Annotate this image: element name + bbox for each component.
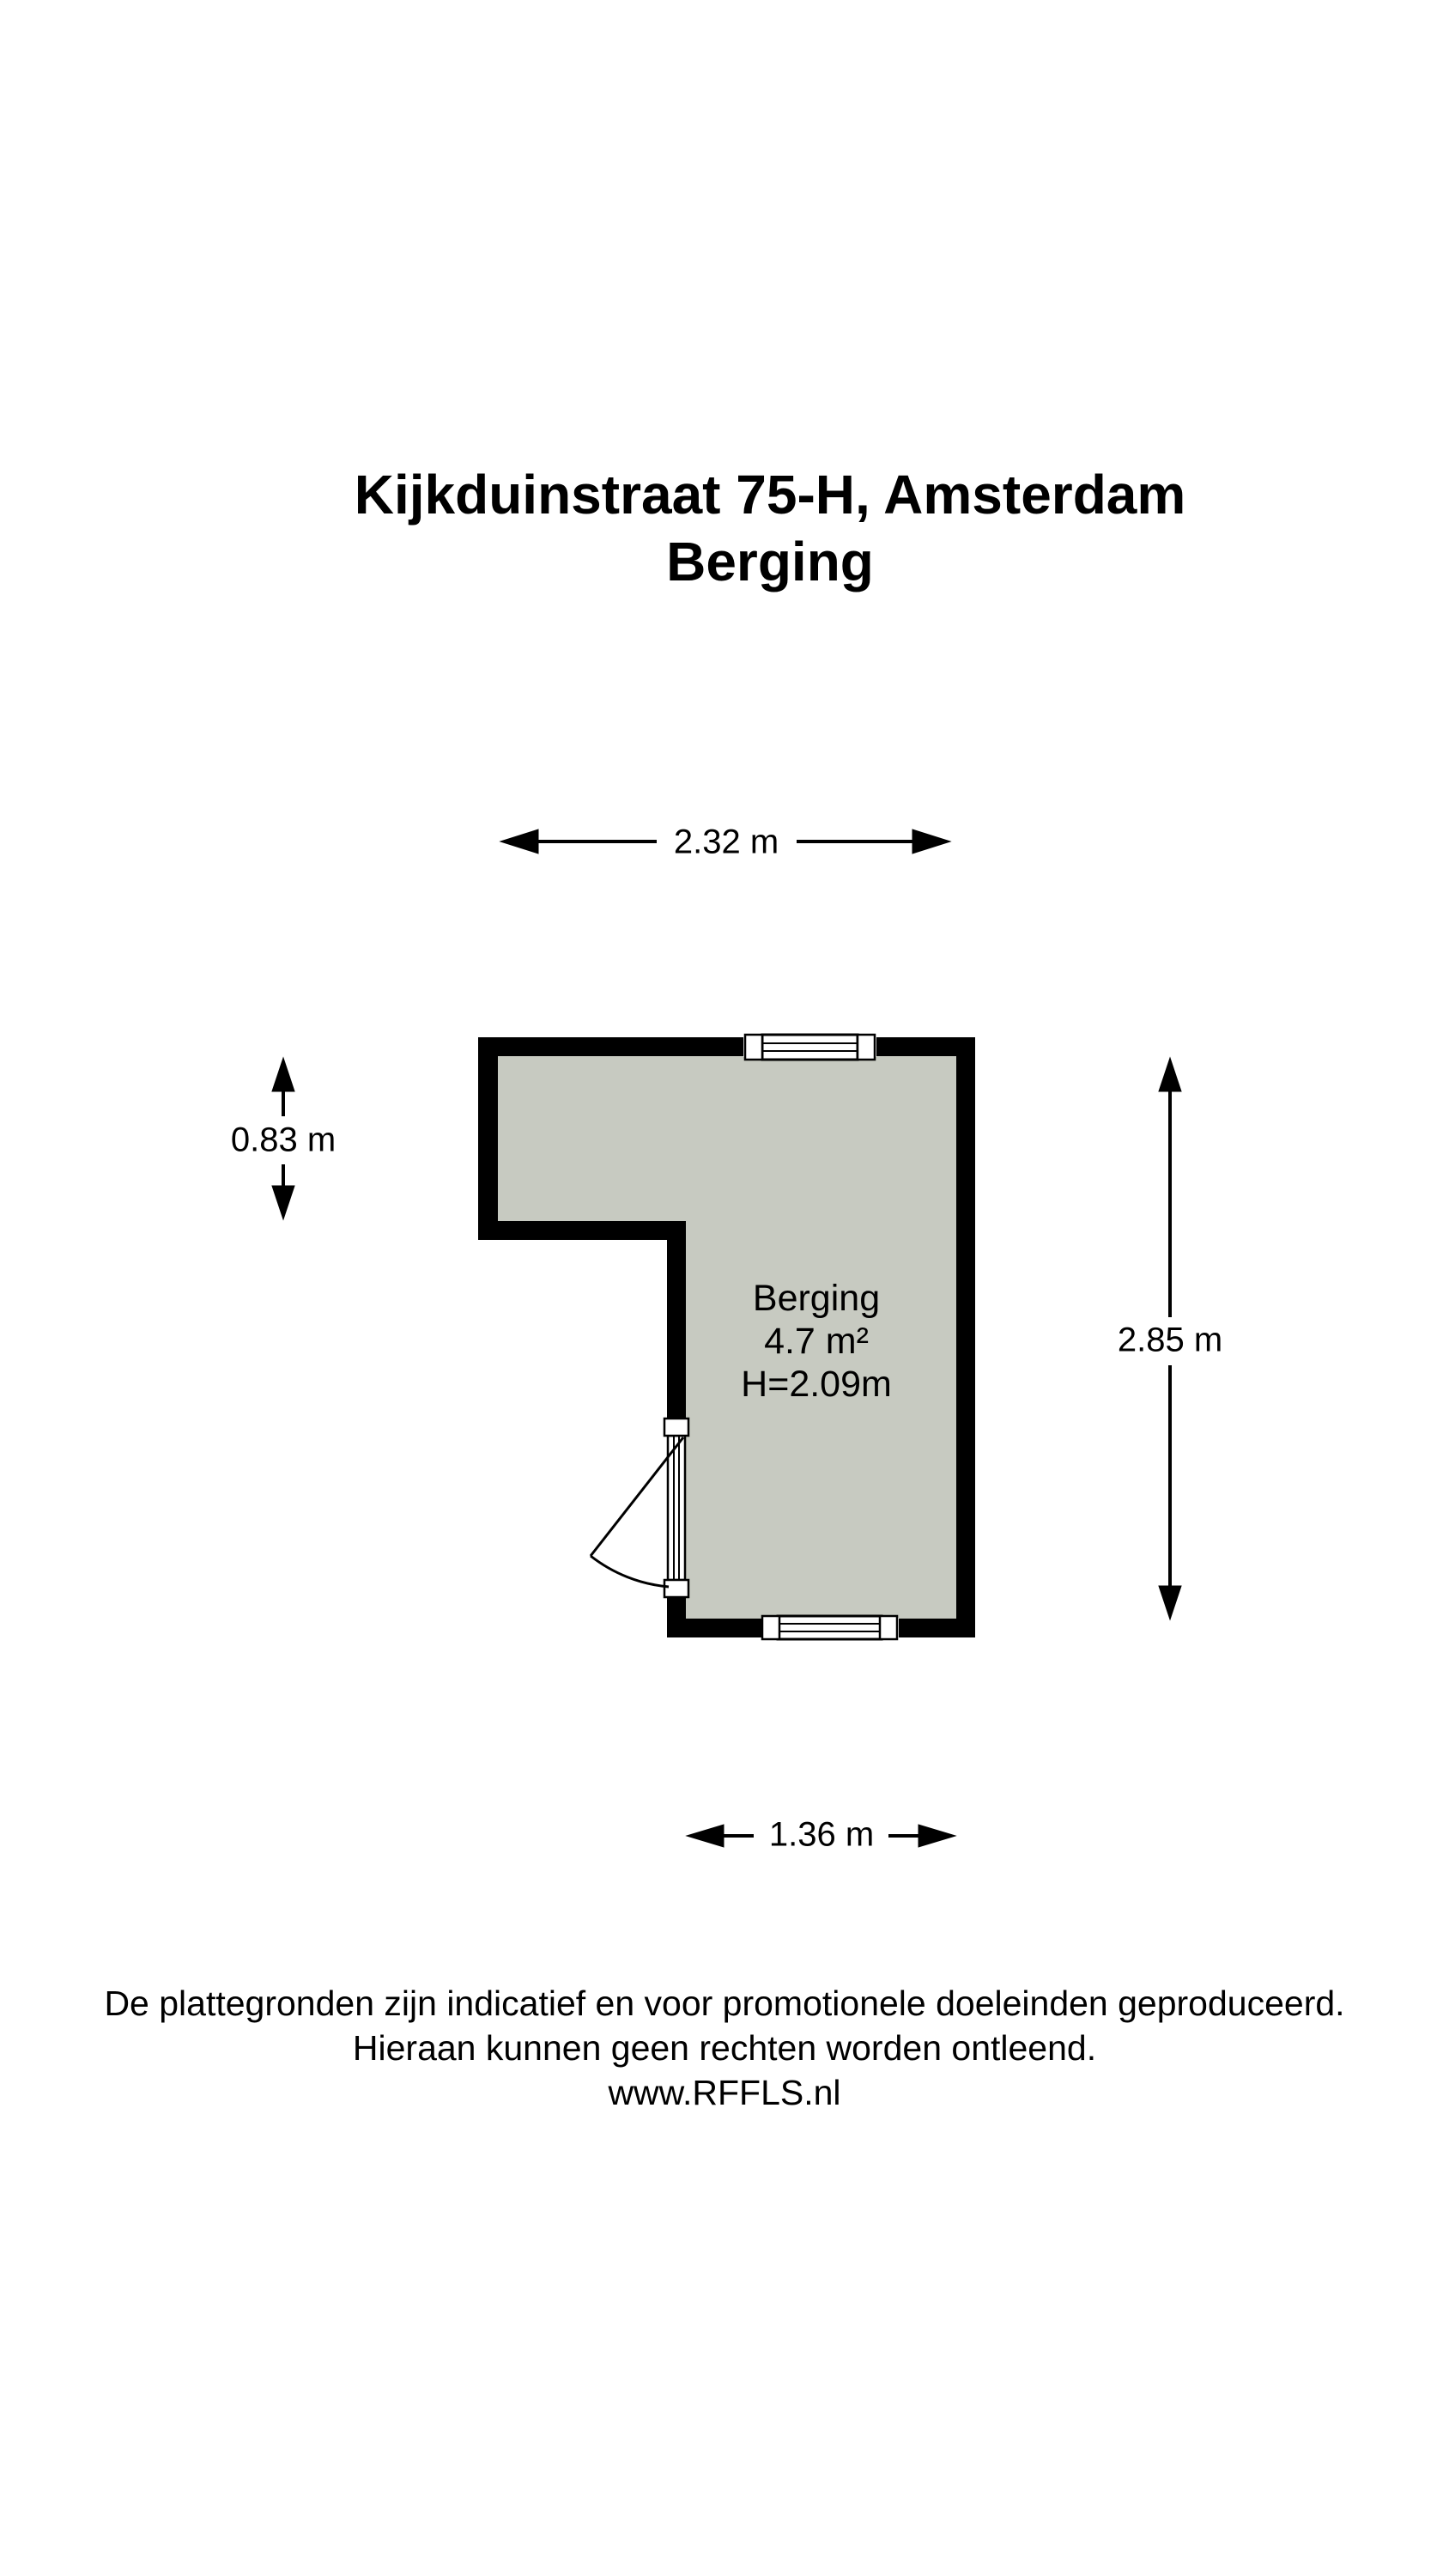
room-name: Berging (741, 1277, 892, 1320)
dimension-label-right: 2.85 m (1113, 1321, 1228, 1360)
room-ceiling-height: H=2.09m (741, 1363, 892, 1406)
door-swing-arc (591, 1556, 669, 1587)
arrowhead-left (687, 1825, 724, 1847)
footer-disclaimer-line2: Hieraan kunnen geen rechten worden ontle… (0, 2026, 1449, 2070)
bottom-window-jamb-left (762, 1616, 779, 1639)
room-area: 4.7 m² (741, 1320, 892, 1363)
footer-website: www.RFFLS.nl (0, 2070, 1449, 2115)
footer: De plattegronden zijn indicatief en voor… (0, 1981, 1449, 2115)
bottom-window-jamb-right (880, 1616, 897, 1639)
footer-disclaimer-line1: De plattegronden zijn indicatief en voor… (0, 1981, 1449, 2026)
top-window-jamb-left (745, 1035, 762, 1060)
door-jamb-bottom (664, 1580, 688, 1597)
arrowhead-down (272, 1186, 294, 1219)
bottom-window-frame (778, 1616, 882, 1639)
bottom-window (762, 1616, 899, 1639)
dimension-label-left: 0.83 m (226, 1121, 341, 1160)
arrowhead-right (919, 1825, 955, 1847)
dimension-label-bottom: 1.36 m (764, 1816, 879, 1855)
entry-door (591, 1419, 688, 1597)
arrowhead-right (912, 829, 950, 854)
arrowhead-up (272, 1058, 294, 1091)
arrowhead-up (1159, 1058, 1181, 1091)
top-window-jamb-right (858, 1035, 875, 1060)
room-label: Berging 4.7 m² H=2.09m (741, 1277, 892, 1406)
floorplan-page: Kijkduinstraat 75-H, Amsterdam Berging (0, 0, 1449, 2576)
arrowhead-down (1159, 1586, 1181, 1619)
door-leaf-closed (668, 1436, 685, 1580)
top-window (743, 1035, 876, 1060)
arrowhead-left (500, 829, 538, 854)
dimension-label-top: 2.32 m (669, 823, 784, 862)
floorplan-drawing (0, 0, 1449, 2576)
top-window-frame (762, 1035, 858, 1060)
door-jamb-top (664, 1419, 688, 1436)
